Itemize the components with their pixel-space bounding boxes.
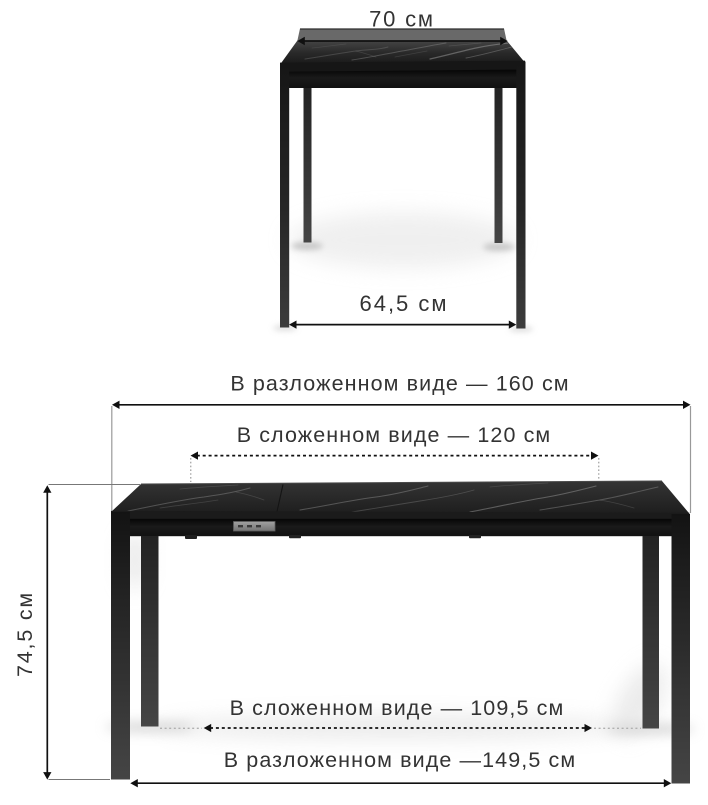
svg-text:В сложенном виде — 120 см: В сложенном виде — 120 см (237, 423, 552, 447)
svg-text:64,5 см: 64,5 см (359, 291, 448, 316)
svg-text:74,5 см: 74,5 см (13, 591, 37, 677)
svg-text:70 см: 70 см (369, 7, 435, 32)
svg-text:В разложенном виде —149,5 см: В разложенном виде —149,5 см (224, 748, 576, 772)
svg-text:В разложенном виде — 160 см: В разложенном виде — 160 см (230, 372, 569, 396)
svg-text:В сложенном виде — 109,5 см: В сложенном виде — 109,5 см (230, 696, 565, 720)
